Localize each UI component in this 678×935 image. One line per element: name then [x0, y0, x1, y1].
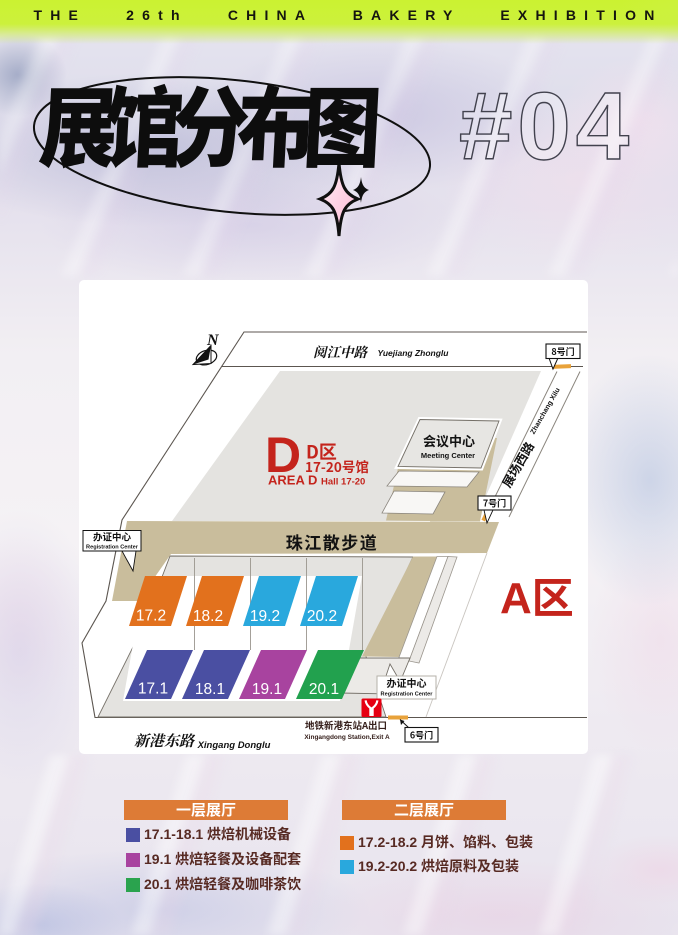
svg-text:20.1: 20.1: [309, 681, 339, 698]
svg-text:A区: A区: [500, 565, 574, 626]
svg-text:办证中心: 办证中心: [93, 530, 132, 544]
svg-text:Meeting Center: Meeting Center: [421, 451, 475, 460]
svg-text:Registration Center: Registration Center: [381, 692, 434, 698]
svg-text:6号门: 6号门: [410, 729, 433, 742]
svg-text:地铁新港东站A出口: 地铁新港东站A出口: [305, 718, 387, 732]
svg-text:N: N: [206, 332, 220, 349]
svg-text:Registration Center: Registration Center: [86, 545, 139, 551]
svg-text:Xingangdong Station,Exit A: Xingangdong Station,Exit A: [304, 734, 390, 741]
svg-text:19.2: 19.2: [250, 608, 280, 625]
svg-text:18.2: 18.2: [193, 608, 223, 625]
svg-text:阅江中路: 阅江中路: [313, 341, 368, 361]
svg-text:19.1: 19.1: [252, 681, 282, 698]
svg-text:会议中心: 会议中心: [423, 431, 475, 450]
svg-text:办证中心: 办证中心: [387, 675, 427, 690]
svg-text:Yuejiang Zhonglu: Yuejiang Zhonglu: [378, 348, 450, 358]
svg-text:20.2: 20.2: [307, 608, 337, 625]
svg-text:珠江散步道: 珠江散步道: [286, 529, 379, 554]
svg-text:Xingang Donglu: Xingang Donglu: [197, 740, 271, 751]
svg-text:7号门: 7号门: [483, 497, 506, 510]
svg-text:8号门: 8号门: [551, 345, 574, 358]
svg-text:新港东路: 新港东路: [134, 730, 196, 751]
svg-text:18.1: 18.1: [195, 681, 225, 698]
svg-text:17.2: 17.2: [136, 608, 166, 625]
svg-text:17.1: 17.1: [138, 681, 168, 698]
